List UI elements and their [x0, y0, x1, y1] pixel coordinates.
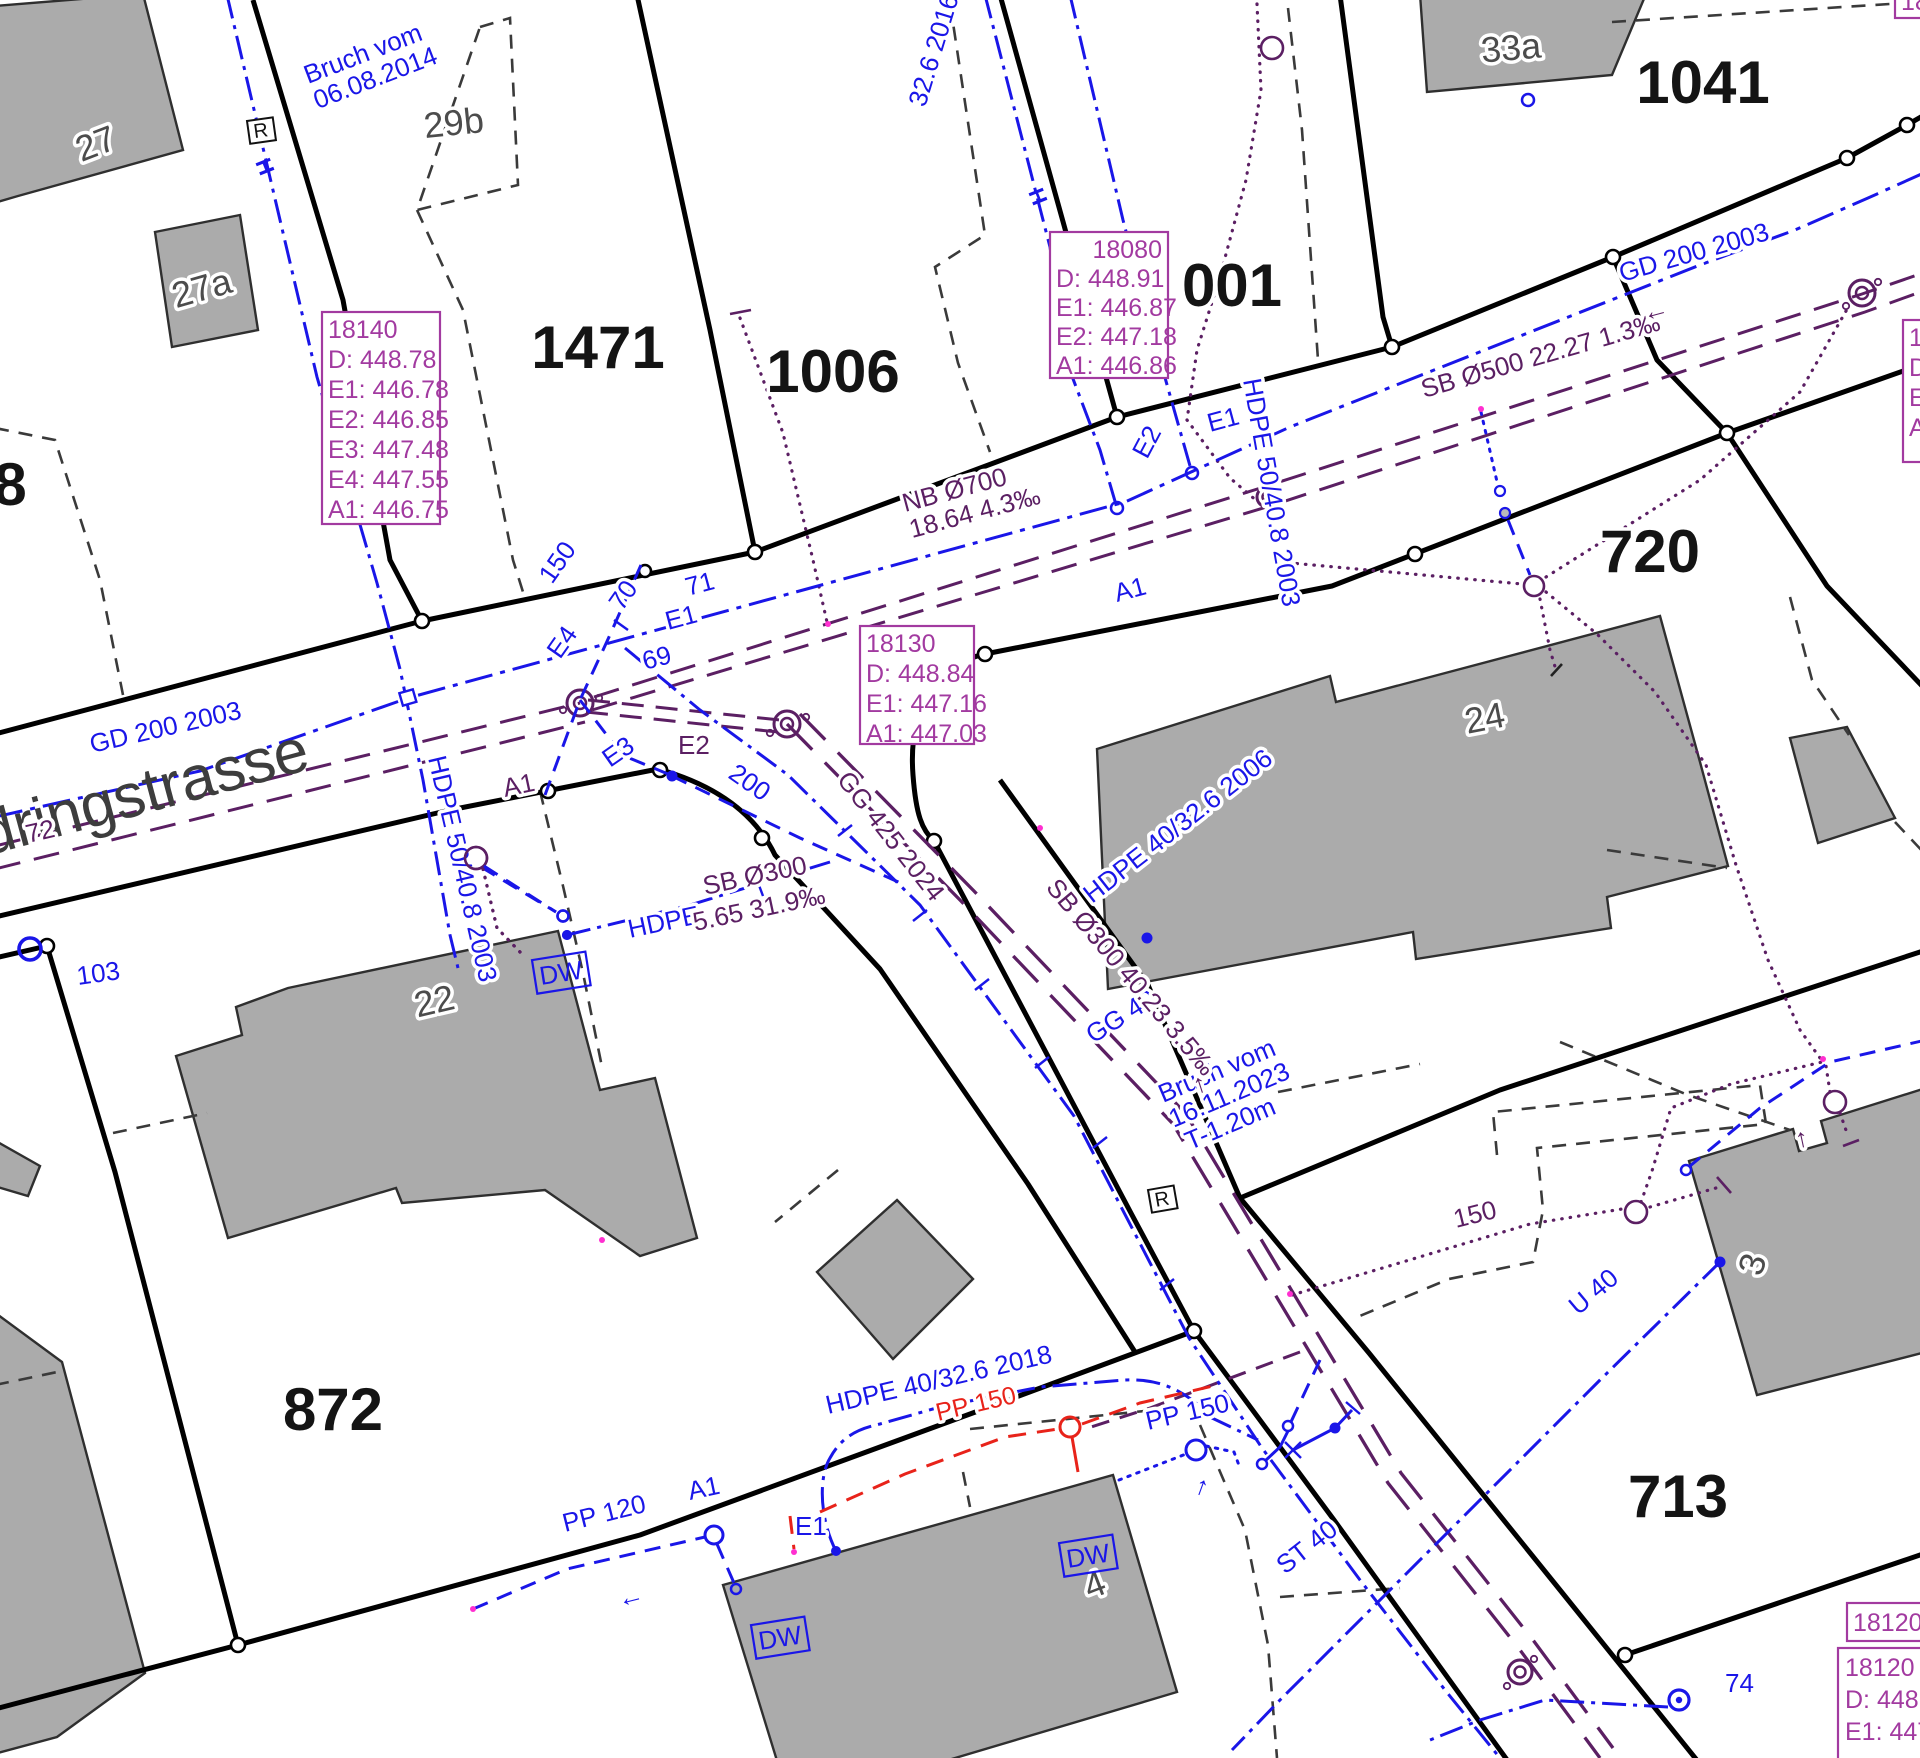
svg-text:18120: 18120	[1845, 1654, 1915, 1682]
svg-text:18070: 18070	[1909, 324, 1920, 352]
svg-text:E2: E2	[678, 730, 710, 760]
svg-text:D: 448.84: D: 448.84	[866, 660, 975, 688]
svg-text:24: 24	[1461, 694, 1508, 742]
svg-text:74: 74	[1725, 1668, 1754, 1698]
svg-text:103: 103	[75, 955, 122, 991]
svg-text:E4: 447.55: E4: 447.55	[328, 466, 449, 494]
svg-text:E1: E1	[795, 1511, 827, 1541]
svg-text:A1: 446: A1: 446	[1909, 414, 1920, 442]
svg-text:001: 001	[1182, 252, 1282, 319]
svg-text:A1: 446.75: A1: 446.75	[328, 496, 449, 524]
svg-text:R: R	[252, 119, 269, 143]
svg-text:E2: 446.85: E2: 446.85	[328, 406, 449, 434]
svg-text:18120: 18120	[1853, 1609, 1920, 1637]
svg-text:D: 448.88: D: 448.88	[1845, 1686, 1920, 1714]
svg-text:E3: 447.48: E3: 447.48	[328, 436, 449, 464]
svg-text:E1: 446.78: E1: 446.78	[328, 376, 449, 404]
svg-text:33a: 33a	[1479, 24, 1543, 70]
svg-text:A1: 447.03: A1: 447.03	[866, 720, 987, 748]
svg-text:872: 872	[283, 1376, 383, 1443]
svg-text:29b: 29b	[422, 99, 486, 146]
svg-text:E1: 446.87: E1: 446.87	[1056, 294, 1177, 322]
svg-text:1041: 1041	[1636, 49, 1769, 116]
svg-text:713: 713	[1628, 1463, 1728, 1530]
svg-text:D: 448.9: D: 448.9	[1909, 354, 1920, 382]
svg-text:D: 448.78: D: 448.78	[328, 346, 436, 374]
svg-text:E1: 447.16: E1: 447.16	[866, 690, 987, 718]
svg-text:D: 448.91: D: 448.91	[1056, 265, 1164, 293]
svg-text:18140: 18140	[328, 316, 398, 344]
svg-text:A1: 446.86: A1: 446.86	[1056, 352, 1177, 380]
svg-text:18130: 18130	[866, 630, 936, 658]
svg-text:18080: 18080	[1092, 236, 1162, 264]
svg-text:E1: 447.33: E1: 447.33	[1845, 1718, 1920, 1746]
svg-text:E2: 447.18: E2: 447.18	[1056, 323, 1177, 351]
svg-text:720: 720	[1600, 518, 1700, 585]
svg-text:8: 8	[0, 451, 27, 518]
svg-text:1807: 1807	[1901, 0, 1920, 16]
svg-text:1006: 1006	[766, 338, 899, 405]
svg-text:E1: 446: E1: 446	[1909, 384, 1920, 412]
svg-text:1471: 1471	[531, 314, 664, 381]
